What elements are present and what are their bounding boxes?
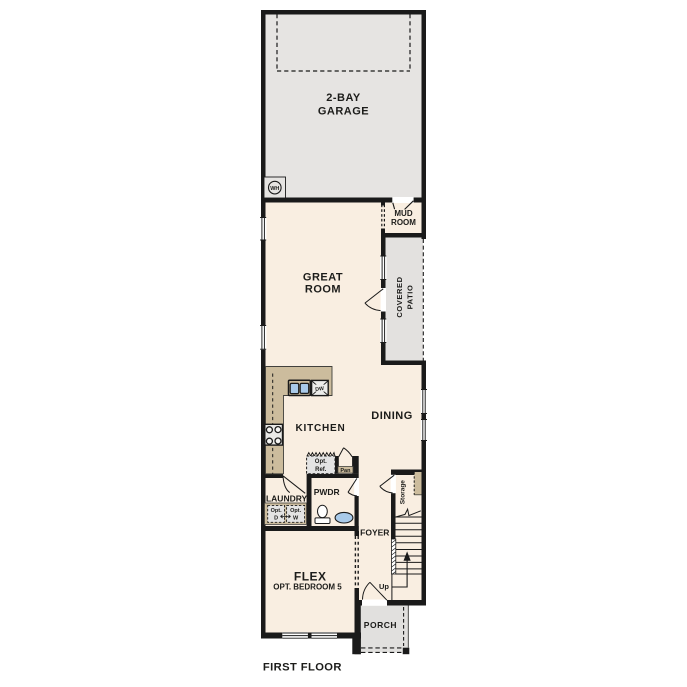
svg-text:Opt.: Opt. (271, 508, 282, 514)
svg-text:OPT. BEDROOM 5: OPT. BEDROOM 5 (273, 582, 342, 591)
svg-text:Opt.: Opt. (290, 508, 301, 514)
svg-text:D: D (274, 516, 278, 522)
svg-text:Storage: Storage (400, 480, 407, 505)
svg-text:DINING: DINING (371, 410, 413, 422)
svg-text:PATIO: PATIO (406, 285, 415, 310)
svg-text:FIRST FLOOR: FIRST FLOOR (263, 662, 342, 674)
svg-text:ROOM: ROOM (305, 284, 341, 296)
svg-text:Pan: Pan (340, 468, 351, 474)
svg-text:W: W (293, 516, 299, 522)
svg-text:FOYER: FOYER (360, 528, 389, 538)
svg-text:LAUNDRY: LAUNDRY (266, 493, 308, 503)
svg-text:WH: WH (270, 186, 279, 192)
svg-text:PORCH: PORCH (364, 620, 397, 630)
svg-text:Up: Up (379, 582, 389, 591)
svg-text:GARAGE: GARAGE (318, 106, 369, 118)
svg-text:2-BAY: 2-BAY (326, 92, 361, 104)
svg-text:ROOM: ROOM (391, 218, 416, 227)
svg-text:Ref.: Ref. (315, 467, 327, 473)
svg-text:PWDR: PWDR (314, 487, 340, 497)
svg-text:FLEX: FLEX (294, 569, 327, 583)
svg-text:KITCHEN: KITCHEN (295, 423, 345, 434)
svg-text:DW: DW (315, 386, 324, 393)
svg-text:Opt.: Opt. (315, 459, 327, 465)
svg-text:GREAT: GREAT (303, 272, 343, 284)
svg-text:MUD: MUD (394, 209, 412, 218)
svg-text:COVERED: COVERED (395, 276, 404, 317)
